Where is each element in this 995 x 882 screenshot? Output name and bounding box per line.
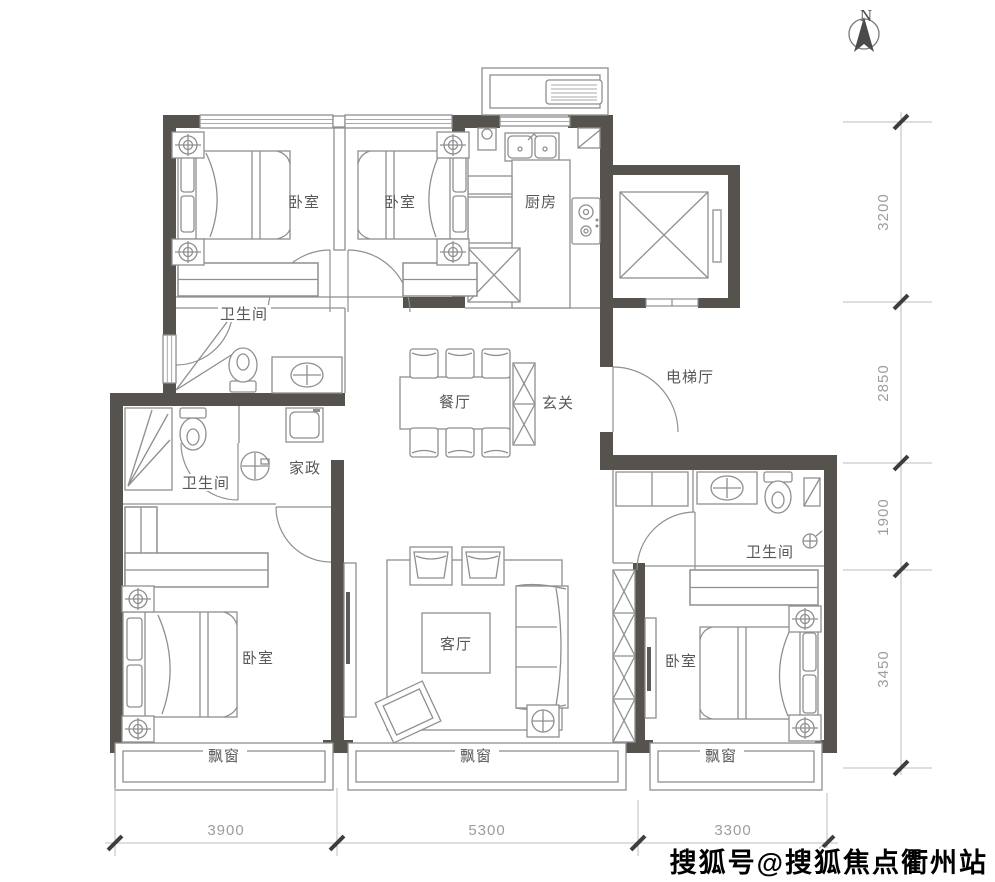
room-label-elevator-hall: 电梯厅 [666, 369, 714, 386]
bed-icon [178, 151, 290, 239]
dimension-bottom-3: 3300 [714, 822, 751, 839]
room-label-bedroom-bottom-left: 卧室 [242, 650, 274, 667]
living-room-furniture [344, 547, 635, 743]
tv-icon [346, 592, 350, 664]
floor-cushion-icon [375, 681, 441, 743]
elevator-shaft [620, 192, 721, 278]
shelf-unit [613, 570, 635, 742]
bay-window-left-label: 飘窗 [208, 747, 240, 765]
room-label-bath-master: 卫生间 [746, 544, 794, 561]
bay-window-right-label: 飘窗 [705, 747, 737, 765]
window-bedroom-top-left [200, 115, 333, 128]
dimension-bottom-1: 3900 [207, 822, 244, 839]
armchair-icon [462, 547, 504, 585]
tv-console-left [344, 563, 356, 717]
room-label-kitchen: 厨房 [525, 194, 557, 211]
room-label-bedroom-top-left: 卧室 [288, 194, 320, 211]
dimension-bottom-2: 5300 [468, 822, 505, 839]
shower-shelf [804, 478, 820, 506]
equipment-platform [482, 68, 608, 115]
room-label-bath-upper: 卫生间 [220, 306, 268, 323]
window-kitchen [500, 117, 570, 126]
watermark: 搜狐号@搜狐焦点衢州站 [670, 847, 988, 878]
bath-upper-fixtures [176, 318, 342, 393]
armchair-icon [410, 547, 452, 585]
target-symbol-icon [172, 239, 204, 265]
elevator-door [646, 299, 698, 306]
washing-machine-icon [286, 408, 323, 442]
bay-window-left: 飘窗 [115, 743, 333, 790]
door-bedroom-bottom-left [276, 507, 331, 562]
toilet-icon [229, 348, 257, 392]
toilet-icon [764, 472, 792, 513]
bedroom-top-left-furniture [178, 151, 318, 296]
floor-plan-page: 飘窗 飘窗 飘窗 [0, 0, 995, 882]
dimension-bottom: 3900 5300 3300 [105, 788, 838, 856]
target-symbol-icon [437, 132, 469, 158]
shower-icon [125, 408, 172, 490]
bay-window-right: 飘窗 [650, 743, 822, 790]
kitchen-fixtures [468, 128, 600, 308]
foyer-cabinet [513, 363, 535, 445]
window-mullion [333, 116, 345, 127]
stove-icon [572, 198, 600, 244]
door-bath-master [637, 512, 695, 570]
target-symbol-icon [437, 239, 469, 265]
door-bedroom-top-middle [348, 250, 410, 312]
dimension-right-3: 1900 [875, 498, 892, 535]
bay-windows-layer: 飘窗 飘窗 飘窗 [115, 743, 822, 790]
room-label-housekeeping: 家政 [289, 460, 321, 477]
side-table-icon [527, 705, 559, 737]
tv-console-right [645, 618, 656, 718]
kitchen-counter [512, 160, 570, 308]
bay-window-middle: 飘窗 [348, 743, 626, 790]
dimension-right-2: 2850 [875, 364, 892, 401]
floor-plan-svg: 飘窗 飘窗 飘窗 [0, 0, 995, 882]
target-symbol-icon [172, 132, 204, 158]
basin-icon [241, 452, 269, 480]
basin-icon [291, 363, 323, 387]
shower-faucet-icon [803, 531, 822, 548]
bay-window-middle-label: 飘窗 [460, 747, 492, 765]
room-label-bedroom-top-middle: 卧室 [384, 194, 416, 211]
target-symbol-icon [122, 716, 154, 742]
room-label-living: 客厅 [440, 636, 472, 653]
north-indicator: N [849, 6, 879, 52]
target-symbol-icon [789, 606, 821, 632]
sofa-icon [516, 585, 568, 710]
target-symbol-icon [789, 715, 821, 741]
window-bath-upper [163, 335, 176, 383]
tv-icon [647, 647, 651, 691]
hall-cabinet [616, 472, 688, 506]
north-label: N [860, 6, 872, 25]
dimension-right-1: 3200 [875, 193, 892, 230]
room-label-bedroom-bottom-right: 卧室 [665, 653, 697, 670]
toilet-icon [180, 408, 206, 450]
target-symbol-icon [122, 586, 154, 612]
dimension-right: 3200 2850 1900 3450 [843, 112, 932, 775]
room-label-dining: 餐厅 [439, 394, 471, 411]
bed-icon [123, 612, 237, 717]
basin-icon [711, 476, 743, 500]
bed-icon [700, 627, 818, 719]
bedroom-top-middle-furniture [358, 151, 477, 296]
room-label-bath-lower: 卫生间 [182, 475, 230, 492]
window-bedroom-top-middle [345, 115, 452, 128]
room-label-foyer: 玄关 [542, 395, 574, 412]
bedroom-bottom-right-furniture [645, 570, 818, 719]
dimension-right-4: 3450 [875, 650, 892, 687]
